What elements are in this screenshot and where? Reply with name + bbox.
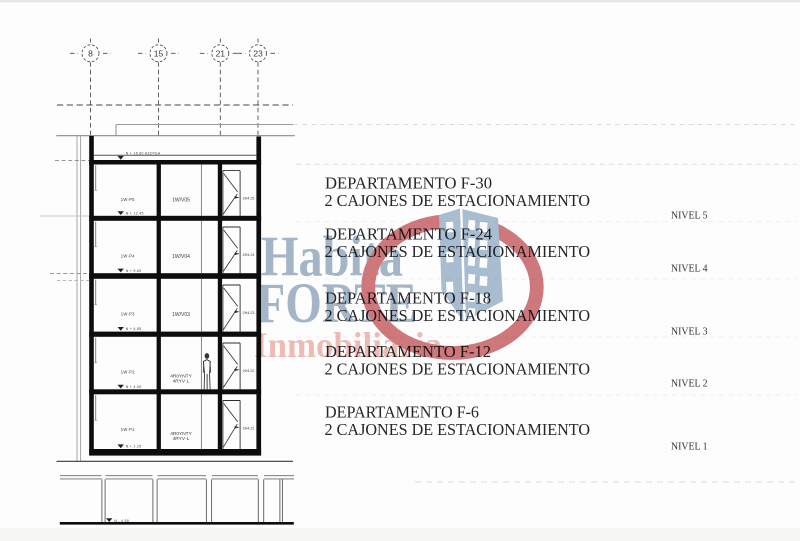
svg-text:·2H4.23: ·2H4.23 xyxy=(242,311,255,315)
svg-text:DEPARTAMENTO F-30: DEPARTAMENTO F-30 xyxy=(325,173,492,192)
svg-text:N + 1.25: N + 1.25 xyxy=(126,445,142,449)
svg-text:15: 15 xyxy=(154,48,164,58)
svg-text:1W·P1: 1W·P1 xyxy=(121,427,135,432)
svg-text:4R0YNTY: 4R0YNTY xyxy=(170,373,192,379)
svg-text:1W·P5: 1W·P5 xyxy=(121,197,135,202)
svg-text:1W/V03: 1W/V03 xyxy=(172,312,190,318)
svg-text:1W·P3: 1W·P3 xyxy=(121,312,135,317)
svg-text:N + 4.05: N + 4.05 xyxy=(126,385,142,389)
svg-text:NIVEL 2: NIVEL 2 xyxy=(671,378,708,390)
svg-text:21: 21 xyxy=(216,48,226,58)
svg-text:2 CAJONES DE ESTACIONAMIENTO: 2 CAJONES DE ESTACIONAMIENTO xyxy=(325,420,591,439)
svg-text:NIVEL 1: NIVEL 1 xyxy=(671,441,708,453)
svg-text:N + 6.85: N + 6.85 xyxy=(126,327,142,331)
svg-text:N + 9.65: N + 9.65 xyxy=(126,269,142,273)
svg-text:1W·P4: 1W·P4 xyxy=(121,254,135,259)
svg-text:1W/V04: 1W/V04 xyxy=(172,254,190,260)
svg-text:NIVEL 4: NIVEL 4 xyxy=(671,263,708,275)
svg-text:23: 23 xyxy=(253,48,263,58)
svg-text:N - 4.55: N - 4.55 xyxy=(114,519,129,523)
svg-text:8: 8 xyxy=(88,48,93,58)
svg-text:·2H4.25: ·2H4.25 xyxy=(242,197,255,201)
svg-text:DEPARTAMENTO F-6: DEPARTAMENTO F-6 xyxy=(325,402,479,421)
svg-text:4RYV·L: 4RYV·L xyxy=(173,379,190,385)
svg-text:·2H4.21: ·2H4.21 xyxy=(242,427,255,431)
svg-text:4RYV·L: 4RYV·L xyxy=(173,436,190,442)
svg-text:2 CAJONES DE ESTACIONAMIENTO: 2 CAJONES DE ESTACIONAMIENTO xyxy=(325,191,591,210)
svg-text:N + 12.45: N + 12.45 xyxy=(126,211,144,215)
svg-text:1W/V05: 1W/V05 xyxy=(172,198,190,204)
svg-text:1W·P2: 1W·P2 xyxy=(121,370,135,375)
svg-text:4R0YNTY: 4R0YNTY xyxy=(170,431,192,437)
svg-text:·2H4.22: ·2H4.22 xyxy=(242,369,255,373)
svg-text:·2H4.24: ·2H4.24 xyxy=(242,253,255,257)
svg-text:N + 15.60 AZOTEA: N + 15.60 AZOTEA xyxy=(126,152,161,156)
svg-text:NIVEL 3: NIVEL 3 xyxy=(671,326,708,338)
svg-text:NIVEL 5: NIVEL 5 xyxy=(671,210,708,222)
